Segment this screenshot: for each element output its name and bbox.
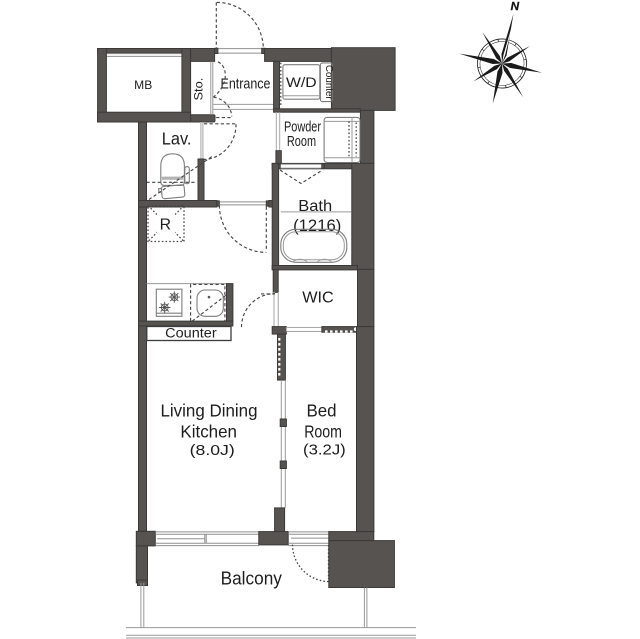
svg-text:WIC: WIC	[302, 289, 334, 306]
svg-text:Kitchen: Kitchen	[180, 421, 237, 441]
svg-text:W/D: W/D	[286, 75, 317, 90]
svg-text:Balcony: Balcony	[221, 569, 282, 589]
svg-text:Sto.: Sto.	[191, 78, 205, 101]
svg-text:Bed: Bed	[306, 401, 336, 421]
svg-text:Living Dining: Living Dining	[161, 401, 258, 421]
svg-text:Bath: Bath	[298, 198, 332, 215]
svg-text:Counter: Counter	[323, 65, 334, 100]
svg-text:Counter: Counter	[165, 326, 217, 341]
svg-text:MB: MB	[134, 78, 152, 92]
svg-text:Room: Room	[304, 421, 342, 441]
svg-text:R: R	[160, 216, 171, 233]
svg-text:Entrance: Entrance	[221, 75, 271, 92]
svg-text:Lav.: Lav.	[162, 129, 192, 149]
svg-text:(8.0J): (8.0J)	[190, 442, 235, 459]
svg-text:(3.2J): (3.2J)	[303, 442, 346, 459]
svg-text:Room: Room	[287, 134, 316, 150]
